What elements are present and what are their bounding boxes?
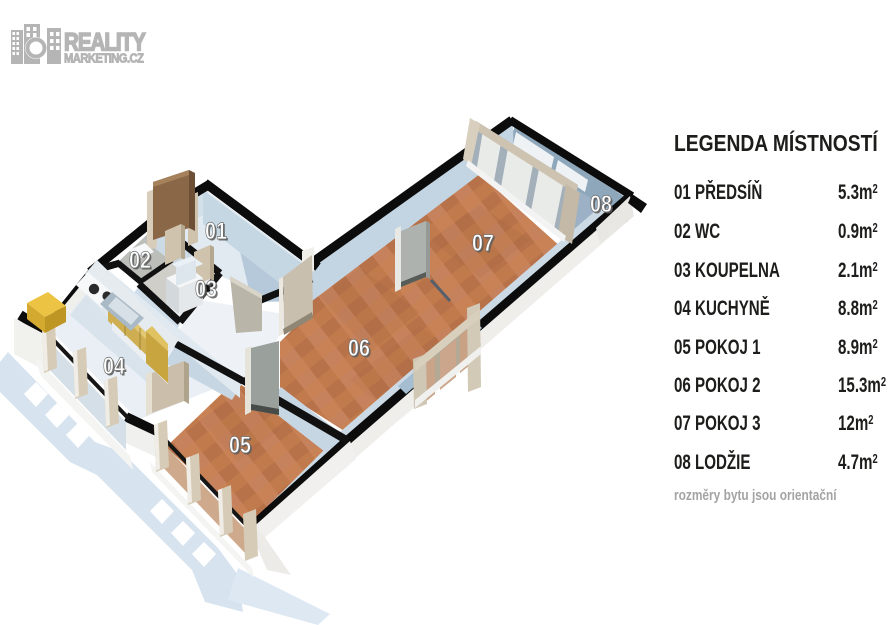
svg-text:03: 03 xyxy=(195,275,217,302)
svg-text:MARKETING.CZ: MARKETING.CZ xyxy=(64,51,144,66)
svg-text:01: 01 xyxy=(205,217,227,244)
svg-text:06: 06 xyxy=(348,334,370,361)
svg-text:04: 04 xyxy=(103,352,126,379)
svg-text:07: 07 xyxy=(472,229,494,256)
svg-text:02: 02 xyxy=(129,246,151,273)
svg-text:08: 08 xyxy=(590,190,612,217)
svg-text:05: 05 xyxy=(229,431,251,458)
